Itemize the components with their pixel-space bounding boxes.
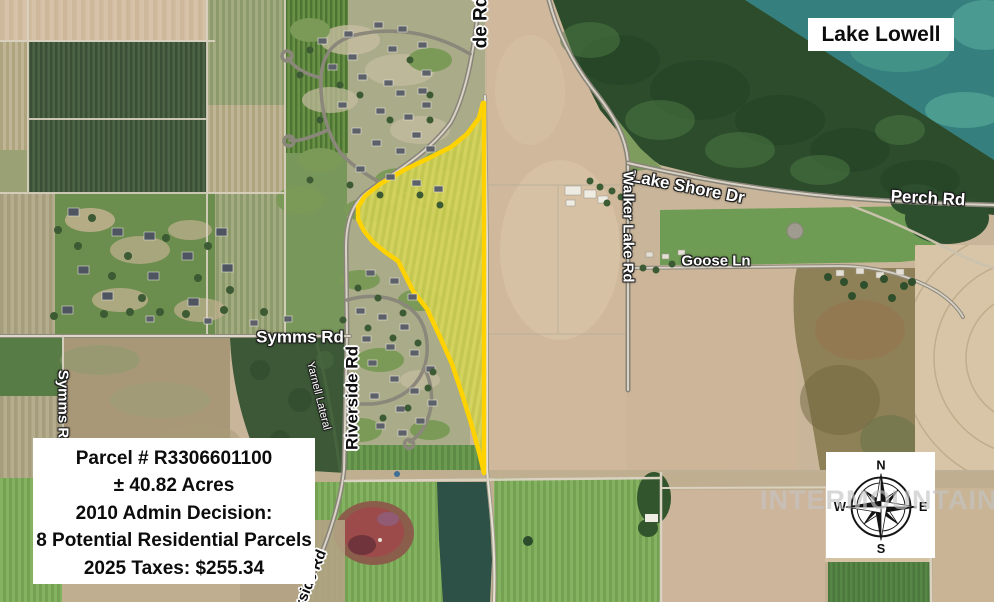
road-label-perch-rd: Perch Rd [890, 188, 965, 209]
acreage-line: ± 40.82 Acres [33, 472, 315, 499]
compass-south-label: S [876, 541, 885, 554]
road-label-walker-lake-rd: Walker Lake Rd [621, 171, 636, 282]
lake-lowell-label-box: Lake Lowell [808, 18, 954, 51]
admin-decision-line: 2010 Admin Decision: [33, 500, 315, 527]
taxes-line: 2025 Taxes: $255.34 [33, 555, 315, 582]
compass-west-label: W [833, 499, 845, 514]
road-label-goose-ln: Goose Ln [681, 254, 750, 269]
road-label-symms-rd-left: Symms R [56, 370, 71, 438]
compass-east-label: E [918, 499, 927, 514]
compass-north-label: N [876, 458, 885, 473]
road-label-riverside-rd-mid: Riverside Rd [344, 346, 361, 450]
compass-rose-icon: N S W E [832, 456, 930, 554]
compass-rose-box: N S W E [826, 452, 935, 558]
road-label-symms-rd: Symms Rd [256, 329, 344, 346]
potential-parcels-line: 8 Potential Residential Parcels [33, 527, 315, 554]
parcel-info-box: Parcel # R3306601100 ± 40.82 Acres 2010 … [33, 438, 315, 584]
parcel-number-line: Parcel # R3306601100 [33, 445, 315, 472]
road-label-riverside-rd-top: de Rd [472, 0, 491, 48]
aerial-parcel-map: de Rd Lake Shore Dr Perch Rd Walker Lake… [0, 0, 994, 602]
lake-lowell-label: Lake Lowell [808, 18, 954, 51]
